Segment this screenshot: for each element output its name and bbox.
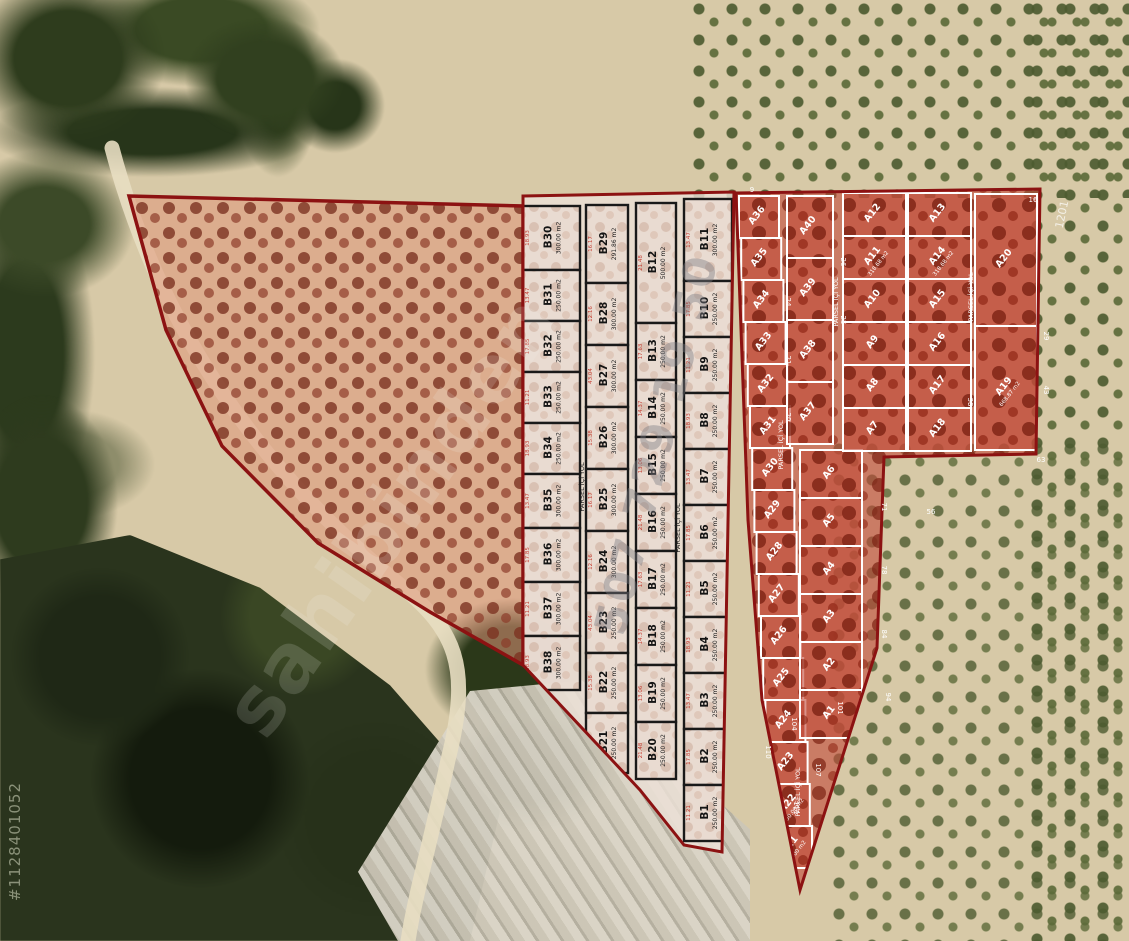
parcel-area-label: 300.00 m2 [556, 593, 563, 626]
parcel-id-label: B2 [699, 748, 711, 763]
parcel-area-label: 250.00 m2 [712, 517, 719, 550]
dimension-label: 17.85 [686, 749, 692, 765]
dimension-label: 29 [1042, 332, 1050, 341]
parcel-id-label: B27 [598, 364, 610, 387]
dimension-label: 11.21 [525, 601, 531, 617]
parcel-id-label: B5 [699, 580, 711, 595]
parcel-id-label: B3 [699, 692, 711, 707]
dimension-label: 56 [927, 508, 936, 516]
dimension-label: 21.48 [638, 742, 644, 758]
parcel-id-label: B4 [699, 636, 711, 651]
parcel-area-label: 250.00 m2 [660, 677, 667, 710]
parcel-id-label: B6 [699, 524, 711, 539]
parcel-area-label: 250.00 m2 [556, 279, 563, 312]
dimension-label: 43 [1042, 386, 1050, 395]
dimension-label: 16.17 [588, 492, 594, 508]
parcel-area-label: 250.00 m2 [556, 432, 563, 465]
dimension-label: 110 [764, 745, 772, 758]
parcel-area-label: 300.00 m2 [712, 224, 719, 257]
dimension-label: 26 [839, 258, 847, 267]
parcel-area-label: 250.00 m2 [712, 741, 719, 774]
dimension-label: 78 [880, 566, 888, 575]
parcel-area-label: 250.00 m2 [712, 629, 719, 662]
parcel-id-label: B18 [647, 624, 659, 647]
parcel-id-label: B8 [699, 412, 711, 427]
aerial-parcel-map: B30300.00 m218.93B31250.00 m213.47B32250… [0, 0, 1129, 941]
dimension-label: 15.38 [588, 675, 594, 691]
parcel-area-label: 250.00 m2 [712, 685, 719, 718]
dimension-label: 13.47 [686, 693, 692, 709]
road-label: PARSEL İÇİ YOL [966, 272, 975, 322]
dimension-label: 38 [966, 398, 974, 407]
dimension-label: 107 [814, 763, 822, 776]
parcel-area-label: 300.00 m2 [611, 360, 618, 393]
parcel-area-label: 250.00 m2 [712, 349, 719, 382]
a-block: A36A35A34A33A32A31A30A29A28A27A26A25A24A… [736, 189, 1040, 890]
dimension-label: 13.06 [638, 685, 644, 701]
dimension-label: 13.47 [686, 469, 692, 485]
dimension-label: 84 [880, 630, 888, 639]
parcel-area-label: 250.00 m2 [660, 620, 667, 653]
dimension-label: 94 [884, 693, 892, 702]
dimension-label: 104 [790, 717, 798, 731]
dimension-label: 21.48 [638, 255, 644, 271]
road-label: PARSEL İÇİ YOL [577, 462, 586, 512]
parcel-area-label: 500.00 m2 [660, 247, 667, 280]
parcel-area-label: 250.00 m2 [712, 573, 719, 606]
parcel-id-label: B29 [598, 232, 610, 255]
dimension-label: 12.16 [588, 554, 594, 570]
parcel-id-label: B26 [598, 426, 610, 449]
parcel-area-label: 250.00 m2 [712, 461, 719, 494]
parcel-area-label: 300.00 m2 [556, 647, 563, 680]
dimension-label: 71 [880, 503, 888, 512]
parcel-id-label: B36 [543, 543, 555, 566]
dimension-label: 43.04 [588, 368, 594, 384]
parcel-plan-overlay: B30300.00 m218.93B31250.00 m213.47B32250… [0, 0, 1129, 941]
dimension-label: 25 [839, 316, 847, 325]
watermark-listing-id: #1128401052 [6, 782, 24, 901]
dimension-label: 13.47 [525, 493, 531, 509]
dimension-label: 12.16 [588, 306, 594, 322]
parcel-area-label: 250.00 m2 [712, 405, 719, 438]
road-label: PARSEL İÇİ YOL [673, 503, 682, 553]
dimension-label: 21 [784, 356, 792, 365]
road-label: PARSEL İÇİ YOL [776, 420, 785, 470]
parcel-id-label: B31 [543, 283, 555, 306]
parcel-id-label: B19 [647, 681, 659, 704]
parcel-id-label: B30 [543, 226, 555, 249]
dimension-label: 18.93 [686, 637, 692, 653]
parcel-area-label: 250.00 m2 [660, 734, 667, 767]
parcel-area-label: 250.00 m2 [556, 381, 563, 414]
dimension-label: 16 [1029, 196, 1038, 204]
dimension-label: 16.17 [588, 236, 594, 252]
dimension-label: 18.93 [525, 230, 531, 246]
dimension-label: 17.63 [638, 343, 644, 359]
dimension-label: 24 [784, 298, 792, 307]
parcel-area-label: 250.00 m2 [611, 727, 618, 760]
parcel-area-label: 291.86 m2 [611, 228, 618, 261]
parcel-area-label: 300.00 m2 [556, 539, 563, 572]
parcel-area-label: 300.00 m2 [556, 222, 563, 255]
dimension-label: 17.85 [686, 525, 692, 541]
parcel-id-label: B20 [647, 738, 659, 761]
dimension-label: 111 [792, 801, 800, 814]
parcel-id-label: B33 [543, 385, 555, 408]
parcel-id-label: B25 [598, 488, 610, 511]
dimension-label: 13.47 [686, 232, 692, 248]
parcel-id-label: B7 [699, 468, 711, 483]
dimension-label: 63 [1037, 456, 1046, 464]
parcel-area-label: 250.00 m2 [712, 797, 719, 830]
parcel-id-label: B37 [543, 597, 555, 620]
parcel-id-label: B22 [598, 671, 610, 694]
dimension-label: 9 [750, 186, 754, 194]
parcel-area-label: 250.00 m2 [611, 667, 618, 700]
parcel-area-label: 300.00 m2 [556, 485, 563, 518]
parcel-id-label: B35 [543, 489, 555, 512]
dimension-label: 20 [784, 413, 792, 422]
dimension-label: 101 [836, 701, 844, 714]
dimension-label: 15.38 [588, 430, 594, 446]
parcel-area-label: 300.00 m2 [611, 422, 618, 455]
parcel-id-label: B11 [699, 228, 711, 251]
dimension-label: 17.85 [525, 547, 531, 563]
road-label: PARSEL İÇİ YOL [831, 277, 840, 327]
parcel-id-label: B38 [543, 651, 555, 674]
parcel-id-label: B1 [699, 804, 711, 819]
parcel-id-label: B28 [598, 302, 610, 325]
parcel-area-label: 300.00 m2 [611, 298, 618, 331]
parcel-id-label: B34 [543, 436, 555, 459]
parcel-id-label: B12 [647, 251, 659, 274]
dimension-label: 18.93 [525, 440, 531, 456]
dimension-label: 14.37 [638, 628, 644, 644]
parcel-area-label: 250.00 m2 [660, 563, 667, 596]
dimension-label: 11.21 [686, 805, 692, 821]
dimension-label: 11.21 [686, 581, 692, 597]
